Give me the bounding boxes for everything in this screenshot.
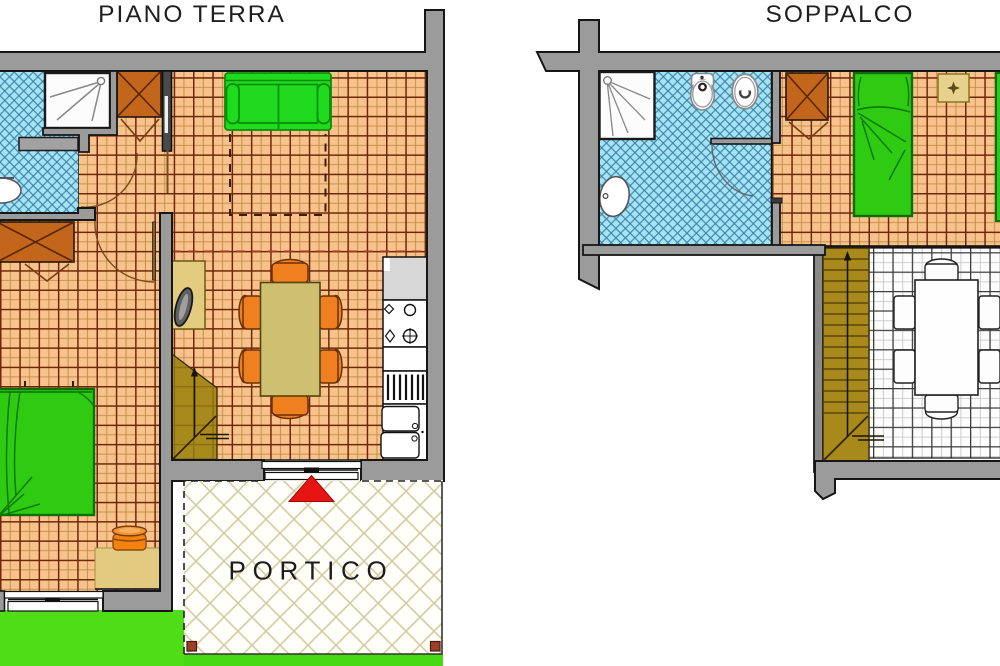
svg-text:SOPPALCO: SOPPALCO [766, 1, 915, 28]
svg-text:PIANO TERRA: PIANO TERRA [98, 1, 286, 28]
svg-text:PORTICO: PORTICO [229, 556, 394, 586]
